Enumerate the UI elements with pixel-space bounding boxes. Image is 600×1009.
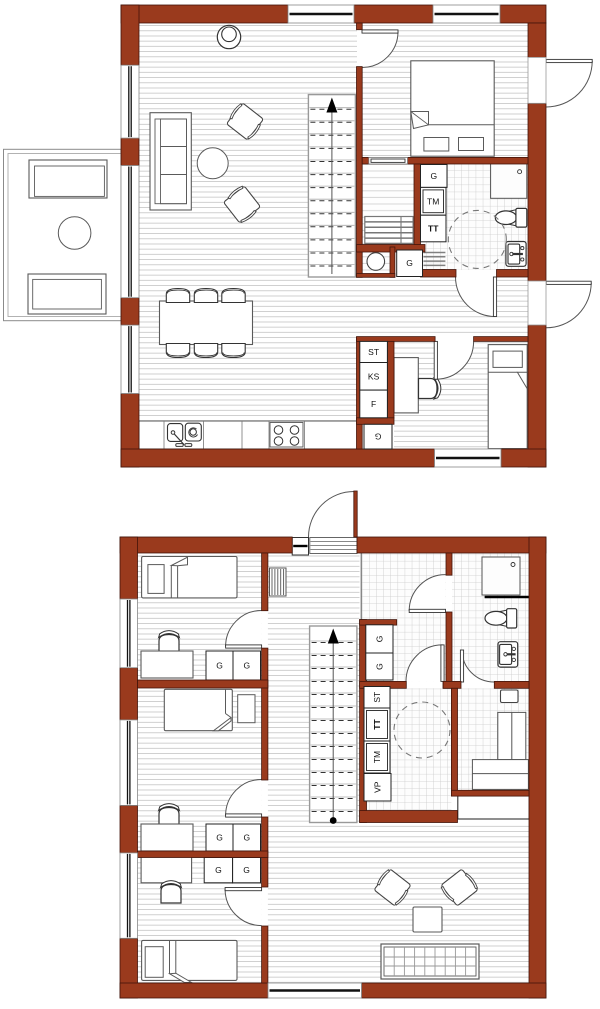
svg-text:G: G [216, 661, 223, 671]
svg-text:VP: VP [373, 781, 383, 793]
svg-text:KS: KS [368, 371, 380, 381]
svg-text:TM: TM [427, 196, 439, 206]
svg-text:G: G [430, 171, 437, 181]
svg-text:G: G [243, 833, 250, 843]
svg-text:TM: TM [372, 751, 382, 763]
svg-text:F: F [371, 399, 376, 409]
svg-text:G: G [216, 833, 223, 843]
svg-text:G: G [406, 258, 413, 268]
svg-text:ST: ST [368, 347, 379, 357]
svg-text:TT: TT [372, 719, 382, 730]
svg-text:ST: ST [372, 692, 382, 703]
svg-text:G: G [375, 432, 382, 442]
svg-text:G: G [215, 865, 222, 875]
svg-text:G: G [243, 865, 250, 875]
svg-text:G: G [374, 636, 384, 643]
svg-text:TT: TT [428, 224, 439, 234]
svg-text:G: G [374, 663, 384, 670]
svg-text:G: G [243, 661, 250, 671]
